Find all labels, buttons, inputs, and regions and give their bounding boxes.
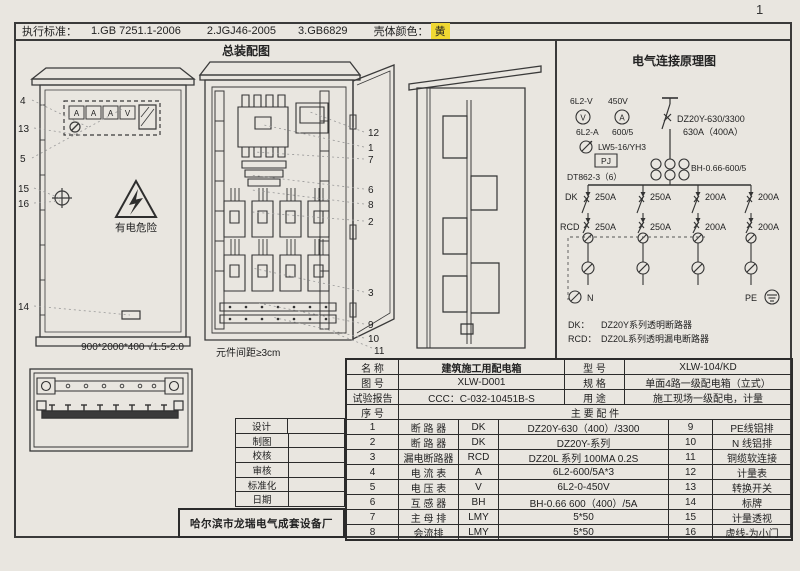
drawing-no-value: XLW-D001	[399, 375, 565, 389]
sign-value	[289, 434, 344, 448]
signature-table: 设计 制图 校核 审核 标准化 日期	[235, 418, 345, 507]
standard-1: 1.GB 7251.1-2006	[91, 25, 181, 37]
part-row-1: 1 断 路 器 DK DZ20Y-630（400）/3300 9 PE线铝排	[347, 420, 791, 435]
ammeter-1-label: A	[74, 109, 80, 118]
n-label: N	[587, 293, 594, 303]
sign-label: 审核	[236, 463, 289, 477]
sign-value	[289, 448, 344, 462]
cabinet-side-view	[405, 58, 555, 358]
branch-breaker-row	[224, 201, 329, 237]
part-no2: 15	[669, 510, 713, 524]
part-row-6: 6 互 感 器 BH BH-0.66 600（400）/5A 14 标牌	[347, 495, 791, 510]
pe-n-rails	[220, 303, 336, 323]
part-no2: 11	[669, 450, 713, 464]
info-row-drawing-no: 图 号 XLW-D001 规 格 单面4路一级配电箱（立式）	[347, 375, 791, 390]
part-no: 4	[347, 465, 399, 479]
standard-2: 2.JGJ46-2005	[207, 25, 276, 37]
main-breaker-model: DZ20Y-630/3300	[677, 114, 745, 124]
legend-dk-value: DZ20Y系列透明断路器	[601, 319, 692, 330]
drawing-no-label: 图 号	[347, 375, 399, 389]
rcd-rating-4: 200A	[758, 222, 779, 232]
spacing-note: 元件间距≥3cm	[216, 344, 280, 359]
part-name2: 计量透视	[713, 510, 791, 524]
part-row-3: 3 漏电断路器 RCD DZ20L 系列 100MA 0.2S 11 铜缆软连接	[347, 450, 791, 465]
side-outline	[409, 66, 541, 348]
main-incoming	[662, 98, 678, 159]
energy-meter-model: DT862-3（6）	[567, 172, 622, 182]
door-handle-lock	[52, 188, 72, 208]
test-report-value: CCC：C-032-10451B-S	[399, 390, 565, 404]
sign-value	[289, 478, 344, 492]
page-number: 1	[756, 2, 763, 17]
legend-rcd-value: DZ20L系列透明漏电断路器	[601, 333, 709, 344]
part-name2: 计量表	[713, 465, 791, 479]
danger-text: 有电危险	[115, 221, 157, 234]
part-spec: BH-0.66 600（400）/5A	[499, 495, 669, 509]
info-row-name: 名 称 建筑施工用配电箱 型 号 XLW-104/KD	[347, 360, 791, 375]
base-busbar	[37, 401, 183, 418]
part-no2: 14	[669, 495, 713, 509]
ct-ratio: 600/5	[612, 127, 634, 137]
test-report-label: 试验报告	[347, 390, 399, 404]
ammeter-model: 6L2-A	[576, 127, 599, 137]
dk-rating-4: 200A	[758, 192, 779, 202]
ammeter-symbol: A	[619, 114, 625, 123]
part-code: BH	[459, 495, 499, 509]
usage-label: 用 途	[565, 390, 625, 404]
part-row-7: 7 主 母 排 LMY 5*50 15 计量透视	[347, 510, 791, 525]
sign-label: 制图	[236, 434, 289, 448]
main-breaker-rating: 630A（400A）	[683, 127, 743, 137]
name-label: 名 称	[347, 360, 399, 374]
part-code: DK	[459, 420, 499, 434]
parts-header-row: 序 号 主 要 配 件	[347, 405, 791, 420]
part-name: 互 感 器	[399, 495, 459, 509]
ammeter-2-label: A	[91, 109, 97, 118]
standards-label: 执行标准：	[22, 23, 77, 39]
part-spec: DZ20Y-630（400）/3300	[499, 420, 669, 434]
part-no2: 9	[669, 420, 713, 434]
company-name-box: 哈尔滨市龙瑞电气成套设备厂	[178, 508, 345, 538]
base-corner-mounts	[37, 378, 183, 394]
part-name: 电 流 表	[399, 465, 459, 479]
neutral-symbol	[569, 291, 581, 303]
parts-header: 主 要 配 件	[399, 405, 791, 419]
part-code: A	[459, 465, 499, 479]
part-spec: DZ20L 系列 100MA 0.2S	[499, 450, 669, 464]
part-no: 8	[347, 525, 399, 539]
part-spec: 5*50	[499, 510, 669, 524]
sign-label: 校核	[236, 448, 289, 462]
earth-symbol	[765, 290, 779, 304]
part-code: DK	[459, 435, 499, 449]
sign-row-standardize: 标准化	[236, 478, 344, 493]
hinge-ticks	[40, 105, 45, 315]
part-name2: 虚线-为小门	[713, 525, 791, 539]
sign-value	[288, 419, 344, 433]
voltmeter-label: V	[125, 109, 131, 118]
part-code: LMY	[459, 510, 499, 524]
part-spec: 5*50	[499, 525, 669, 539]
part-no: 2	[347, 435, 399, 449]
sign-value	[289, 492, 344, 506]
rcd-label: RCD	[560, 222, 580, 232]
part-row-4: 4 电 流 表 A 6L2-600/5A*3 12 计量表	[347, 465, 791, 480]
part-row-2: 2 断 路 器 DK DZ20Y-系列 10 N 线铝排	[347, 435, 791, 450]
ct-model: BH-0.66-600/5	[691, 163, 747, 173]
pe-label: PE	[745, 293, 757, 303]
dimension-note: 900*2000*400 √1.5-2.0	[40, 342, 225, 353]
nameplate-slot	[122, 311, 140, 319]
lightning-bolt-icon	[129, 189, 143, 215]
sign-row-review: 审核	[236, 463, 344, 478]
part-no2: 16	[669, 525, 713, 539]
title-block-table: 名 称 建筑施工用配电箱 型 号 XLW-104/KD 图 号 XLW-D001…	[345, 358, 793, 541]
part-spec: 6L2-600/5A*3	[499, 465, 669, 479]
part-no: 1	[347, 420, 399, 434]
part-row-5: 5 电 压 表 V 6L2-0-450V 13 转换开关	[347, 480, 791, 495]
part-no: 3	[347, 450, 399, 464]
part-name2: PE线铝排	[713, 420, 791, 434]
cabinet-open-view	[198, 55, 403, 355]
usage-value: 施工现场一级配电，计量	[625, 390, 791, 404]
open-door	[350, 65, 394, 339]
ammeter-3-label: A	[108, 109, 114, 118]
info-row-test-report: 试验报告 CCC：C-032-10451B-S 用 途 施工现场一级配电，计量	[347, 390, 791, 405]
electric-danger-sign: 有电危险	[115, 181, 157, 234]
part-no: 7	[347, 510, 399, 524]
part-name2: 铜缆软连接	[713, 450, 791, 464]
rcd-rating-2: 250A	[650, 222, 671, 232]
branch-risers-bottom	[231, 239, 323, 255]
legend-dk-key: DK：	[568, 320, 590, 330]
rcd-rating-1: 250A	[595, 222, 616, 232]
metering-group: 6L2-V 450V V A 6L2-A 600/5 LW5-16/YH3 PJ…	[567, 96, 646, 182]
part-spec: DZ20Y-系列	[499, 435, 669, 449]
part-no2: 12	[669, 465, 713, 479]
part-no2: 10	[669, 435, 713, 449]
part-spec: 6L2-0-450V	[499, 480, 669, 494]
main-breaker-block	[238, 95, 288, 157]
standard-3: 3.GB6829	[298, 25, 348, 37]
busbar-stack	[242, 161, 286, 186]
rcd-breaker-row	[224, 255, 329, 291]
branch-risers-top	[231, 188, 323, 201]
sign-label: 设计	[236, 419, 288, 433]
mounting-rails	[215, 91, 329, 329]
spec-value: 单面4路一级配电箱（立式）	[625, 375, 791, 389]
part-code: LMY	[459, 525, 499, 539]
drawing-sheet: { "page": {"number": "1"}, "top_bar": { …	[0, 0, 800, 571]
sign-label: 日期	[236, 492, 289, 506]
dk-rating-1: 250A	[595, 192, 616, 202]
legend-rcd-key: RCD：	[568, 334, 597, 344]
sign-value	[289, 463, 344, 477]
rcd-rating-3: 200A	[705, 222, 726, 232]
pj-label: PJ	[601, 156, 611, 166]
base-detail-view	[28, 365, 196, 457]
dk-rating-2: 250A	[650, 192, 671, 202]
part-name: 电 压 表	[399, 480, 459, 494]
part-no: 5	[347, 480, 399, 494]
part-name: 主 母 排	[399, 510, 459, 524]
sign-row-draft: 制图	[236, 434, 344, 449]
model-label: 型 号	[565, 360, 625, 374]
voltmeter-symbol: V	[580, 114, 586, 123]
part-name2: 标牌	[713, 495, 791, 509]
part-row-8: 8 会流排 LMY 5*50 16 虚线-为小门	[347, 525, 791, 539]
part-no2: 13	[669, 480, 713, 494]
shell-color-label: 壳体颜色：	[374, 23, 429, 39]
seq-label: 序 号	[347, 405, 399, 419]
product-name: 建筑施工用配电箱	[399, 360, 565, 374]
meter-box	[296, 103, 328, 133]
voltmeter-model: 6L2-V	[570, 96, 593, 106]
sign-row-design: 设计	[236, 419, 344, 434]
part-name: 漏电断路器	[399, 450, 459, 464]
meter-panel: A A A V	[64, 101, 160, 135]
spec-label: 规 格	[565, 375, 625, 389]
changeover-switch-model: LW5-16/YH3	[598, 142, 646, 152]
schematic-drawing: 6L2-V 450V V A 6L2-A 600/5 LW5-16/YH3 PJ…	[555, 40, 793, 358]
base-top-rail	[55, 381, 165, 391]
sign-label: 标准化	[236, 478, 289, 492]
part-name: 会流排	[399, 525, 459, 539]
part-code: RCD	[459, 450, 499, 464]
part-name: 断 路 器	[399, 420, 459, 434]
shell-color-value: 黄	[431, 23, 450, 39]
part-name2: 转换开关	[713, 480, 791, 494]
dk-rating-3: 200A	[705, 192, 726, 202]
sign-row-date: 日期	[236, 492, 344, 506]
cabinet-front-view: A A A V 有电危险	[28, 65, 198, 355]
part-name2: N 线铝排	[713, 435, 791, 449]
voltmeter-range: 450V	[608, 96, 628, 106]
dk-label: DK	[565, 192, 578, 202]
part-name: 断 路 器	[399, 435, 459, 449]
standards-bar: 执行标准： 1.GB 7251.1-2006 2.JGJ46-2005 3.GB…	[14, 22, 792, 41]
part-code: V	[459, 480, 499, 494]
current-transformers	[651, 159, 689, 185]
part-no: 6	[347, 495, 399, 509]
sign-row-check: 校核	[236, 448, 344, 463]
model-value: XLW-104/KD	[625, 360, 791, 374]
